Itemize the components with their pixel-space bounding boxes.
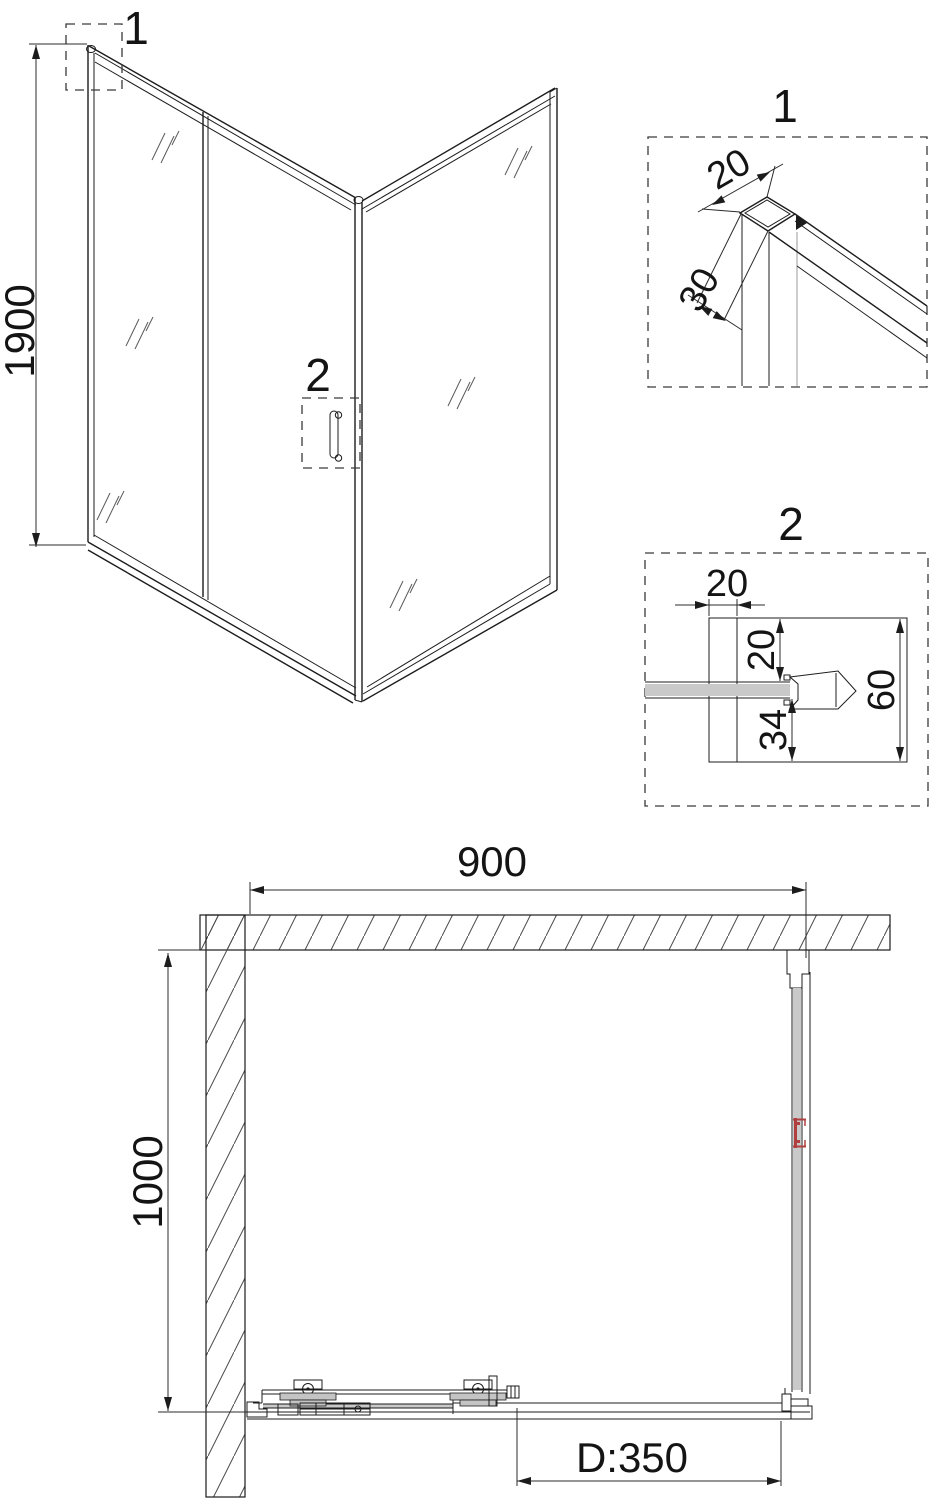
- detail-1-top-rail: [769, 214, 927, 358]
- detail-2-dim-top: 20: [741, 619, 784, 681]
- detail-2-dim-bottom: 34: [753, 699, 796, 761]
- corner-connector: [782, 1388, 812, 1419]
- detail-view-2: 2 20 20: [645, 498, 928, 806]
- bottom-rail-side: [363, 576, 557, 701]
- door-opening-dimension: D:350: [517, 1408, 781, 1486]
- detail-1-title: 1: [772, 80, 798, 132]
- detail-1-dim-20: 20: [698, 141, 783, 212]
- corner-profile-section: [740, 197, 807, 386]
- perspective-view: 1 2 1900: [0, 2, 557, 703]
- roller-assembly: [450, 1380, 506, 1406]
- detail-callout-2: 2: [302, 349, 360, 468]
- top-rail-side: [362, 88, 555, 212]
- detail-view-1: 1 20: [648, 80, 927, 387]
- dim-door-label: D:350: [576, 1434, 688, 1481]
- dim-900-label: 900: [457, 838, 527, 885]
- dim-1000-label: 1000: [124, 1135, 171, 1228]
- callout-2-label: 2: [305, 349, 331, 401]
- dim-1900-label: 1900: [0, 284, 43, 377]
- dim-top-label: 20: [741, 629, 783, 671]
- wall-hatch-top: [200, 915, 890, 950]
- dim-20-label: 20: [700, 141, 758, 199]
- corner-post: [354, 197, 363, 703]
- height-dimension: 1900: [0, 44, 87, 547]
- dim-width-label: 20: [706, 563, 748, 605]
- plan-view: 900 1000: [124, 838, 890, 1497]
- side-panel-plan: [787, 950, 810, 1394]
- detail-2-dim-width: 20: [675, 563, 765, 616]
- callout-1-label: 1: [123, 2, 149, 54]
- shower-enclosure-technical-drawing: 1 2 1900 1: [0, 0, 938, 1500]
- roller-assembly: [280, 1380, 336, 1406]
- bottom-track-assembly: [247, 1376, 812, 1419]
- top-rail-front: [89, 46, 356, 210]
- wall-hatch-left: [206, 915, 245, 1497]
- door-handle: [330, 411, 342, 461]
- dim-total-label: 60: [861, 669, 903, 711]
- detail-2-dim-total: 60: [861, 619, 904, 761]
- detail-1-dim-30: 30: [671, 214, 768, 330]
- right-frame-profile: [550, 88, 557, 590]
- door-stile: [203, 112, 208, 600]
- left-frame-profile: [87, 45, 96, 542]
- detail-2-title: 2: [778, 498, 804, 550]
- dim-bottom-label: 34: [753, 709, 795, 751]
- rail-end-cap: [507, 1386, 519, 1398]
- bottom-rail-front: [88, 535, 356, 703]
- dim-30-label: 30: [671, 261, 729, 319]
